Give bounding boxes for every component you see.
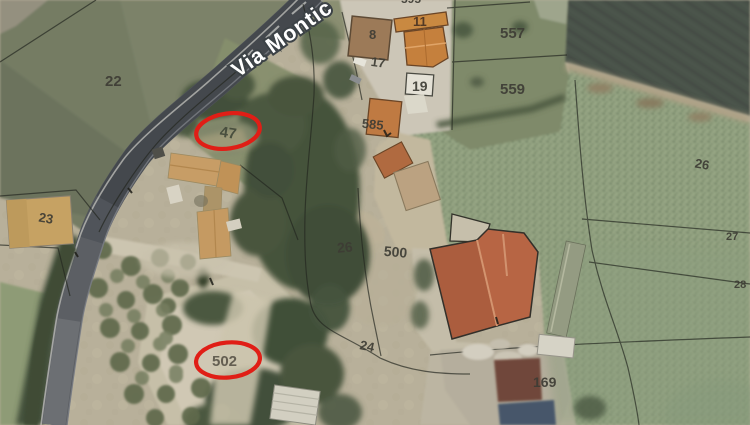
svg-text:17: 17 [370, 54, 386, 71]
svg-text:595: 595 [401, 0, 421, 6]
svg-text:8: 8 [369, 27, 376, 42]
svg-text:502: 502 [212, 353, 237, 370]
svg-text:169: 169 [533, 374, 557, 390]
svg-text:557: 557 [500, 25, 525, 42]
svg-text:27: 27 [726, 231, 738, 243]
svg-text:11: 11 [413, 14, 427, 29]
svg-text:23: 23 [38, 210, 55, 227]
svg-text:559: 559 [500, 81, 525, 98]
svg-text:26: 26 [336, 238, 353, 255]
svg-text:22: 22 [105, 73, 122, 90]
svg-text:47: 47 [219, 124, 238, 143]
svg-text:585: 585 [361, 116, 384, 133]
svg-text:500: 500 [383, 243, 408, 261]
svg-text:26: 26 [694, 156, 711, 173]
svg-text:28: 28 [734, 279, 746, 291]
svg-text:19: 19 [412, 78, 428, 94]
